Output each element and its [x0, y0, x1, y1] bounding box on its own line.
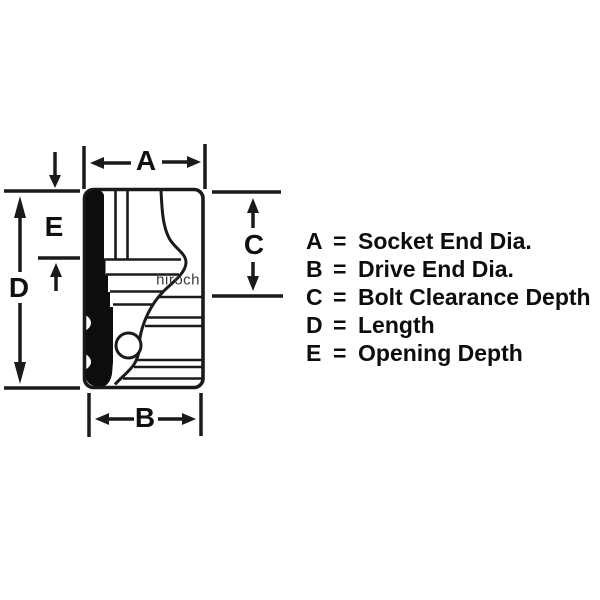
legend-row-d: D = Length — [306, 311, 591, 339]
dim-d-arrow-up-icon — [14, 196, 26, 218]
dim-e-arrow-up-icon — [50, 263, 62, 277]
dim-label-b: B — [135, 404, 155, 432]
legend-desc-e: Opening Depth — [358, 339, 591, 367]
legend-desc-b: Drive End Dia. — [358, 255, 591, 283]
dim-label-c: C — [244, 231, 264, 259]
dim-a-arrow-left-icon — [90, 157, 104, 169]
legend-letter-b: B — [306, 255, 333, 283]
dim-b-arrow-right-icon — [182, 413, 196, 425]
legend-equals: = — [333, 283, 358, 311]
legend-desc-c: Bolt Clearance Depth — [358, 283, 591, 311]
socket-dimension-diagram: A B C D E hirochi A = Socket End Dia. B … — [0, 0, 600, 600]
dim-a-arrow-right-icon — [187, 156, 201, 168]
dim-c-arrow-down-icon — [247, 276, 259, 291]
legend-equals: = — [333, 255, 358, 283]
dim-label-e: E — [45, 213, 64, 241]
legend-row-c: C = Bolt Clearance Depth — [306, 283, 591, 311]
legend-equals: = — [333, 227, 358, 255]
legend-letter-c: C — [306, 283, 333, 311]
dim-d-arrow-down-icon — [14, 362, 26, 384]
dim-c-arrow-up-icon — [247, 198, 259, 213]
dim-label-a: A — [136, 147, 156, 175]
legend-equals: = — [333, 311, 358, 339]
socket-body — [85, 190, 204, 388]
legend-row-a: A = Socket End Dia. — [306, 227, 591, 255]
legend-desc-a: Socket End Dia. — [358, 227, 591, 255]
dim-b-arrow-left-icon — [95, 413, 109, 425]
legend-desc-d: Length — [358, 311, 591, 339]
legend-letter-e: E — [306, 339, 333, 367]
legend-row-b: B = Drive End Dia. — [306, 255, 591, 283]
legend-row-e: E = Opening Depth — [306, 339, 591, 367]
detent-ball-bump — [116, 333, 141, 358]
dim-label-d: D — [9, 274, 29, 302]
watermark-text: hirochi — [156, 272, 204, 289]
dim-e-arrow-down-icon — [49, 175, 61, 188]
legend-equals: = — [333, 339, 358, 367]
legend: A = Socket End Dia. B = Drive End Dia. C… — [306, 227, 591, 367]
legend-letter-d: D — [306, 311, 333, 339]
legend-letter-a: A — [306, 227, 333, 255]
